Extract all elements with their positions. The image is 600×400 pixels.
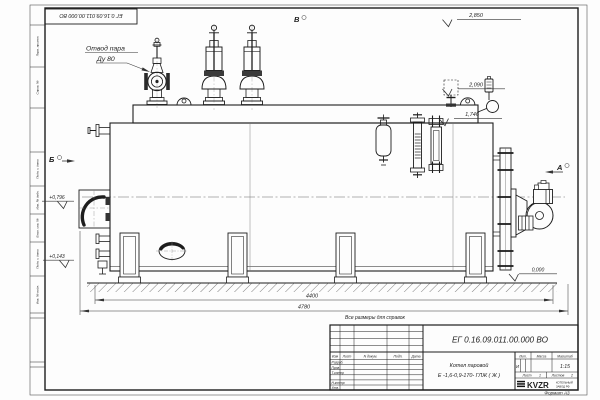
- side-label-inv-dubl: Инв. № дубл.: [36, 190, 40, 209]
- drawing-sheet: Перв. примен. Справ. № Подп. и дата Инв.…: [0, 0, 600, 400]
- tb-lit-value: И: [516, 364, 519, 369]
- support-leg: [119, 233, 141, 283]
- tb-sheets-label: Листов: [551, 374, 565, 378]
- elevation-0000-value: 0,000: [532, 268, 545, 274]
- view-marker-a-label: А: [556, 163, 562, 172]
- engineering-drawing-canvas: Перв. примен. Справ. № Подп. и дата Инв.…: [0, 0, 600, 400]
- side-label-perv-primen: Перв. примен.: [36, 36, 40, 57]
- tb-sheet-label: Лист: [521, 374, 531, 378]
- tb-scale-header: Масштаб: [557, 354, 573, 358]
- tb-row-utv: Утв.: [332, 386, 340, 390]
- dim-4400-value: 4400: [306, 294, 319, 300]
- tb-lit-header: Лит.: [518, 354, 527, 358]
- reference-note: Все размеры для справок: [345, 315, 406, 321]
- tb-row-prov: Пров.: [332, 366, 341, 370]
- view-marker-v-label: В: [294, 15, 300, 24]
- elevation-0143-value: +0,143: [49, 254, 65, 260]
- side-label-inv-podl: Инв. № подл.: [36, 285, 40, 304]
- ground-hatching: [87, 283, 557, 292]
- top-stamp-doc-number: ЕГ 0.16.09.011.00.000 ВО: [59, 12, 123, 18]
- tb-row-razrab: Разраб.: [332, 361, 344, 365]
- kvzr-logo-sub1: КОТЕЛЬНЫЙ: [556, 381, 573, 385]
- title-block-doc-number: ЕГ 0.16.09.011.00.000 ВО: [452, 336, 549, 345]
- support-leg: [335, 233, 357, 283]
- tb-col-izm: Изм: [332, 354, 339, 358]
- support-leg: [465, 233, 487, 283]
- tb-row-nkontr: Н.контр: [332, 381, 345, 385]
- tb-product-line1: Котел паровой: [450, 362, 489, 369]
- side-label-podp-data-2: Подп. и дата: [36, 249, 40, 269]
- steam-outlet-callout-line1: Отвод пара: [86, 45, 125, 53]
- elevation-2850-value: 2,850: [468, 13, 484, 19]
- tb-sheet-value: 1: [539, 374, 541, 378]
- side-label-sprav: Справ. №: [36, 80, 40, 95]
- view-marker-b-label: Б: [49, 155, 55, 164]
- tb-product-line2: Е -1,6-0,9-170- ГЛЖ ( Ж ): [438, 373, 500, 379]
- tb-col-data: Дата: [411, 354, 421, 358]
- tb-scale-value: 1:15: [560, 364, 570, 370]
- side-label-podp-data-1: Подп. и дата: [36, 159, 40, 179]
- steam-outlet-callout-line2: Ду 80: [96, 56, 115, 63]
- format-note: Формат А3: [544, 391, 570, 396]
- elevation-0796-value: +0,796: [49, 195, 65, 201]
- tb-col-podp: Подп.: [393, 354, 402, 358]
- elevation-2090-value: 2,090: [468, 83, 484, 89]
- support-leg: [227, 233, 249, 283]
- tb-row-tkontr: Т.контр: [332, 371, 345, 375]
- tb-mass-header: Масса: [537, 354, 547, 358]
- tb-sheets-value: 2: [570, 374, 573, 378]
- elevation-1746-value: 1,746: [465, 112, 480, 118]
- dim-4780-value: 4780: [298, 305, 311, 311]
- tb-col-ndokum: N докум.: [364, 354, 378, 358]
- kvzr-logo-text: KVZR: [527, 381, 549, 390]
- kvzr-logo-sub2: ЗАВОД РФ: [556, 385, 570, 389]
- tb-col-list: Лист: [342, 354, 352, 358]
- side-label-vzam-inv: Взам. инв. №: [36, 218, 40, 238]
- boiler-drum: [133, 105, 478, 123]
